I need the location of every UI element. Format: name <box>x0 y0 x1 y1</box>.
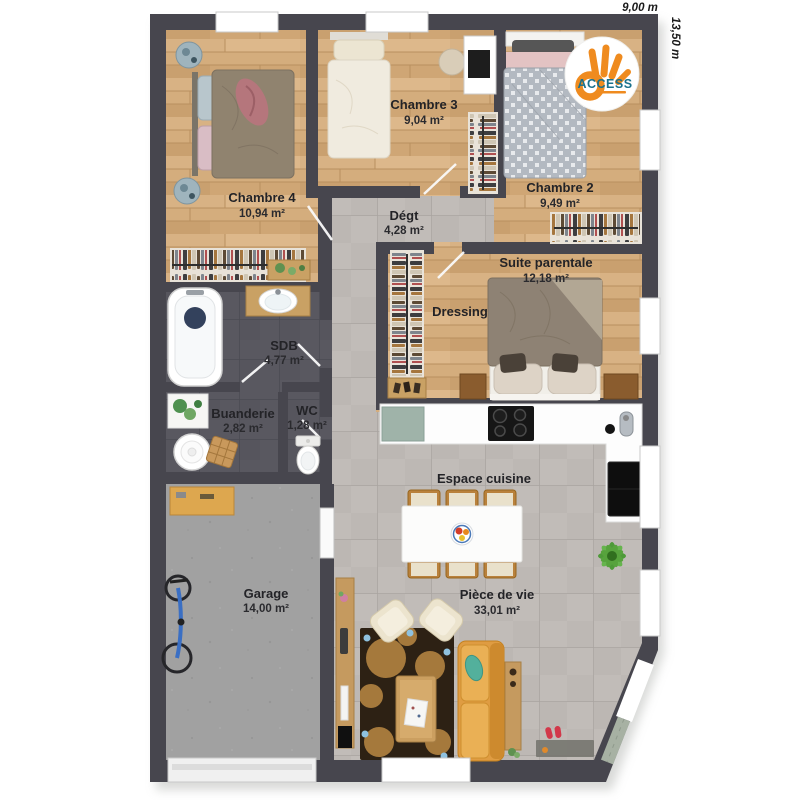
room-label-text: Chambre 4 <box>228 190 296 205</box>
room-label-text: Espace cuisine <box>437 471 531 486</box>
window-chambre2 <box>640 110 660 170</box>
window-chambre3 <box>366 12 428 32</box>
dressing-rack <box>388 250 426 398</box>
toilet <box>296 436 320 474</box>
coffee-table <box>396 676 436 742</box>
room-label-dressing: Dressing <box>432 304 488 319</box>
wardrobe-rack <box>550 212 642 244</box>
side-table <box>505 662 521 758</box>
nightstand <box>176 42 202 68</box>
window-kitchen-2 <box>640 570 660 636</box>
room-label-text: Dégt <box>390 208 420 223</box>
clothes-rack <box>468 112 498 194</box>
room-label-garage: Garage 14,00 m² <box>243 586 289 615</box>
room-label-text: Dressing <box>432 304 488 319</box>
room-label-text: Buanderie <box>211 406 275 421</box>
room-area-text: 12,18 m² <box>523 273 569 285</box>
desk <box>464 36 496 94</box>
room-label-text: Chambre 3 <box>390 97 457 112</box>
room-area-text: 14,00 m² <box>243 603 289 615</box>
dining-set <box>402 490 522 578</box>
dimension-height: 13,50 m <box>669 17 681 59</box>
fridge <box>608 462 642 516</box>
garage-interior-door <box>320 508 334 558</box>
tv <box>338 726 352 748</box>
room-area-text: 4,28 m² <box>384 225 424 237</box>
dimension-width: 9,00 m <box>622 2 658 14</box>
window-kitchen-1 <box>640 446 660 528</box>
room-area-text: 9,04 m² <box>404 115 444 127</box>
window-living <box>382 758 470 782</box>
washing-machine <box>174 434 210 470</box>
tv-console <box>336 578 354 748</box>
room-label-text: WC <box>296 403 318 418</box>
vanity-sink <box>246 286 310 316</box>
room-label-degt: Dégt 4,28 m² <box>384 208 424 237</box>
bathtub <box>168 288 222 386</box>
room-label-text: Pièce de vie <box>460 587 534 602</box>
bedside-bench <box>460 374 486 399</box>
plant-shelf <box>268 260 310 280</box>
double-bed <box>488 278 602 400</box>
fruit-plate <box>451 523 473 545</box>
laundry-shelf <box>168 394 208 428</box>
nightstand <box>174 178 200 204</box>
sofa <box>458 641 504 761</box>
brand-logo-text: ACCESS <box>577 77 632 91</box>
room-area-text: 9,49 m² <box>540 198 580 210</box>
room-label-text: Chambre 2 <box>526 180 593 195</box>
cooktop <box>488 406 534 441</box>
desk-chair <box>439 49 465 75</box>
bedside-bench <box>604 374 638 399</box>
room-area-text: 4,77 m² <box>264 355 304 367</box>
window-suite <box>640 298 660 354</box>
workbench <box>170 487 234 515</box>
glass-panel <box>382 407 424 441</box>
floor-garage-concrete <box>166 484 332 760</box>
floor-plan-page: Chambre 4 10,94 m² Chambre 3 9,04 m² Cha… <box>0 0 800 800</box>
room-area-text: 10,94 m² <box>239 208 285 220</box>
garage-door <box>168 758 316 782</box>
room-label-text: Garage <box>244 586 289 601</box>
floor-plan: Chambre 4 10,94 m² Chambre 3 9,04 m² Cha… <box>0 0 800 800</box>
room-label-text: Suite parentale <box>499 255 592 270</box>
room-area-text: 33,01 m² <box>474 605 520 617</box>
window-chambre4 <box>216 12 278 32</box>
plant <box>598 542 626 570</box>
room-label-cuisine: Espace cuisine <box>437 471 531 486</box>
room-label-text: SDB <box>270 338 297 353</box>
room-area-text: 1,28 m² <box>287 420 327 432</box>
single-bed <box>328 32 390 158</box>
room-area-text: 2,82 m² <box>223 423 263 435</box>
brand-logo: ACCESS <box>565 37 639 111</box>
